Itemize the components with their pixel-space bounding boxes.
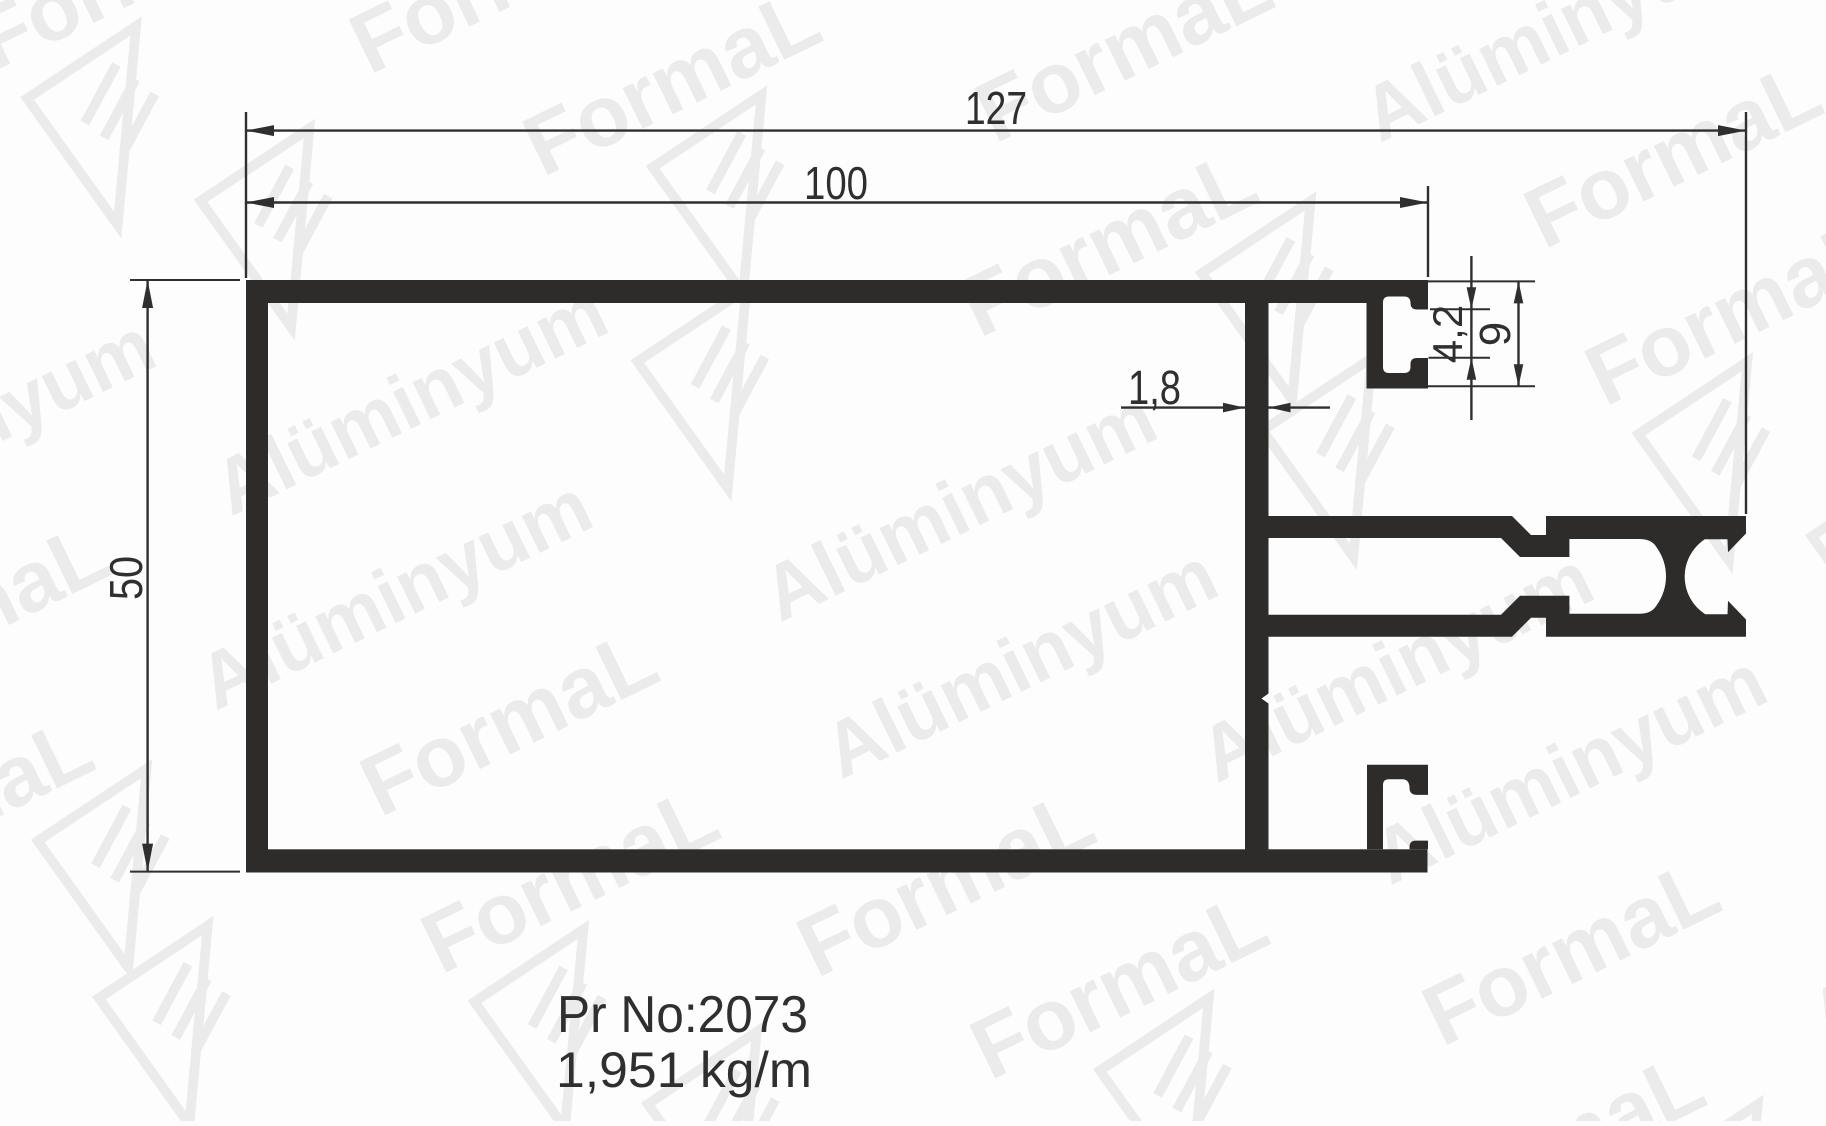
svg-text:1,8: 1,8 xyxy=(1128,362,1181,415)
svg-text:9: 9 xyxy=(1471,322,1520,346)
svg-text:Alüminyum: Alüminyum xyxy=(1811,602,1826,867)
svg-text:FormaL: FormaL xyxy=(1408,840,1734,1065)
svg-text:Alüminyum: Alüminyum xyxy=(1796,797,1826,1062)
svg-text:4,2: 4,2 xyxy=(1424,305,1471,363)
svg-text:Alüminyum: Alüminyum xyxy=(0,1097,66,1121)
svg-text:1,951 kg/m: 1,951 kg/m xyxy=(556,1042,812,1098)
svg-text:FormaL: FormaL xyxy=(1510,43,1826,268)
svg-text:Alüminyum: Alüminyum xyxy=(0,940,5,1121)
svg-text:FormaL: FormaL xyxy=(0,0,286,89)
svg-text:FormaL: FormaL xyxy=(946,131,1272,356)
svg-text:Alüminyum: Alüminyum xyxy=(22,1101,442,1121)
svg-text:FormaL: FormaL xyxy=(961,0,1287,161)
svg-text:50: 50 xyxy=(100,556,152,600)
svg-text:127: 127 xyxy=(965,82,1027,134)
svg-text:100: 100 xyxy=(804,157,868,209)
svg-text:FormaL: FormaL xyxy=(509,0,835,195)
svg-text:FormaL: FormaL xyxy=(0,504,123,729)
svg-text:Pr No:2073: Pr No:2073 xyxy=(557,986,808,1044)
